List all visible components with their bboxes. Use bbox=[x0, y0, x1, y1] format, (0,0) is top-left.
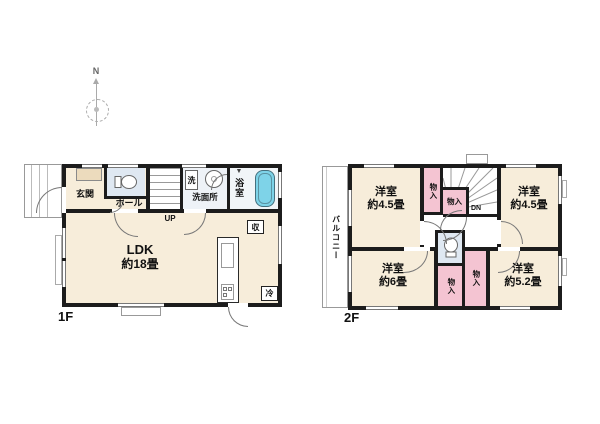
balcony-inner-line bbox=[326, 167, 327, 307]
closet-1-label: 物入 bbox=[426, 172, 439, 210]
stairs-up bbox=[150, 168, 180, 209]
back-door-arc bbox=[228, 307, 248, 327]
hall-label: ホール bbox=[106, 197, 152, 209]
window bbox=[182, 164, 206, 168]
window bbox=[506, 164, 536, 168]
storage-label: 収 bbox=[252, 222, 260, 233]
interior-wall bbox=[227, 168, 230, 212]
room-name: 洋室 bbox=[382, 263, 404, 276]
room-nw-label: 洋室 約4.5畳 bbox=[352, 183, 420, 215]
stove-burner-icon bbox=[223, 287, 227, 291]
floorplan-canvas: N 洗 ▼ 収 冷 bbox=[0, 0, 600, 424]
washing-machine-box: 洗 bbox=[185, 170, 198, 190]
up-label-text: UP bbox=[164, 214, 175, 223]
interior-wall bbox=[462, 230, 465, 306]
closet-label-text: 物入 bbox=[447, 198, 462, 207]
room-size: 約4.5畳 bbox=[510, 199, 547, 212]
porch-step-line bbox=[31, 165, 32, 217]
window bbox=[278, 172, 282, 198]
bathtub-icon bbox=[255, 170, 275, 207]
roof-protrusion bbox=[466, 154, 488, 164]
interior-wall bbox=[424, 212, 443, 215]
entrance-label: 玄関 bbox=[68, 188, 102, 200]
hall-label-text: ホール bbox=[115, 198, 142, 208]
floor1-label: 1F bbox=[58, 309, 73, 324]
window bbox=[62, 228, 66, 258]
room-se-label: 洋室 約5.2畳 bbox=[487, 260, 559, 292]
closet-2-label: 物入 bbox=[443, 196, 466, 208]
fridge-label: 冷 bbox=[266, 288, 274, 299]
closet-label-text: 物入 bbox=[471, 270, 480, 287]
window-shutter-box bbox=[55, 235, 62, 285]
ldk-label: LDK 約18畳 bbox=[98, 240, 182, 274]
entrance-closet bbox=[76, 168, 102, 181]
bathtub-inner-line bbox=[258, 173, 272, 204]
dn-label: DN bbox=[468, 204, 484, 214]
toilet-icon bbox=[114, 174, 138, 190]
floor2-label: 2F bbox=[344, 310, 359, 325]
bathroom-label-text: 浴室 bbox=[234, 178, 244, 198]
dn-label-text: DN bbox=[471, 205, 481, 213]
kitchen-sink bbox=[221, 243, 234, 268]
window bbox=[366, 306, 398, 310]
ldk-name-text: LDK bbox=[127, 243, 154, 258]
stove-burner-icon bbox=[228, 287, 232, 291]
interior-wall bbox=[180, 168, 183, 212]
fridge-box: 冷 bbox=[261, 286, 278, 301]
room-name: 洋室 bbox=[512, 263, 534, 276]
stove-burner-icon bbox=[223, 293, 227, 297]
up-label: UP bbox=[158, 213, 182, 224]
window bbox=[82, 164, 102, 168]
window-shutter-box bbox=[562, 258, 567, 276]
window bbox=[558, 176, 562, 204]
closet-3-label: 物入 bbox=[444, 270, 457, 302]
washroom-label: 洗面所 bbox=[183, 192, 227, 203]
closet-label-text: 物入 bbox=[428, 183, 437, 200]
window bbox=[62, 261, 66, 287]
balcony-label-text: バルコニー bbox=[331, 215, 340, 260]
room-sw-label: 洋室 約6畳 bbox=[352, 260, 434, 292]
washroom-label-text: 洗面所 bbox=[192, 193, 218, 203]
ldk-size-text: 約18畳 bbox=[121, 258, 158, 272]
room-size: 約5.2畳 bbox=[504, 276, 541, 289]
entrance-step bbox=[121, 307, 161, 316]
entrance-label-text: 玄関 bbox=[76, 189, 94, 199]
window bbox=[108, 164, 138, 168]
balcony-label: バルコニー bbox=[328, 186, 344, 288]
storage-box: 収 bbox=[247, 220, 264, 234]
room-size: 約6畳 bbox=[379, 276, 407, 289]
room-name: 洋室 bbox=[375, 186, 397, 199]
room-size: 約4.5畳 bbox=[367, 199, 404, 212]
window bbox=[278, 226, 282, 264]
closet-label-text: 物入 bbox=[446, 278, 455, 295]
compass-north-label: N bbox=[88, 66, 104, 76]
window bbox=[500, 306, 530, 310]
interior-wall bbox=[104, 168, 107, 199]
room-name: 洋室 bbox=[518, 186, 540, 199]
exterior-wall bbox=[62, 303, 282, 307]
compass-center-dot bbox=[94, 107, 99, 112]
washer-label: 洗 bbox=[188, 175, 196, 186]
door-opening bbox=[62, 187, 66, 213]
room-ne-label: 洋室 約4.5畳 bbox=[500, 183, 558, 215]
bathroom-label: 浴室 bbox=[233, 172, 245, 204]
window bbox=[364, 164, 394, 168]
window-shutter-box bbox=[562, 180, 567, 198]
closet-4-label: 物入 bbox=[469, 262, 482, 294]
